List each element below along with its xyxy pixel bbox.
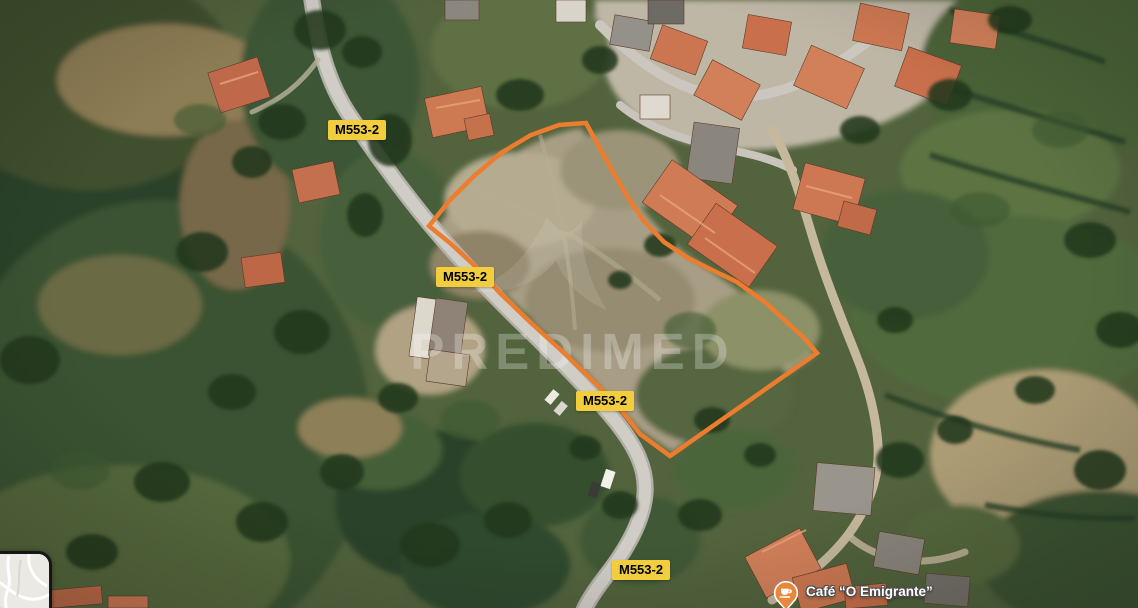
poi-cafe-marker[interactable]: Café “O Emigrante” xyxy=(772,580,933,608)
road-label-m553-2: M553-2 xyxy=(612,560,670,580)
watermark-text: PREDIMED xyxy=(410,322,735,381)
inset-roads xyxy=(0,554,49,608)
cafe-pin-icon[interactable] xyxy=(772,580,800,608)
road-label-m553-2: M553-2 xyxy=(576,391,634,411)
map-inset-thumbnail[interactable] xyxy=(0,551,52,608)
poi-cafe-label[interactable]: Café “O Emigrante” xyxy=(806,584,933,599)
road-label-m553-2: M553-2 xyxy=(328,120,386,140)
road-label-m553-2: M553-2 xyxy=(436,267,494,287)
map-viewport[interactable]: PREDIMED M553-2 M553-2 M553-2 M553-2 Caf… xyxy=(0,0,1138,608)
pin-body xyxy=(775,582,798,608)
